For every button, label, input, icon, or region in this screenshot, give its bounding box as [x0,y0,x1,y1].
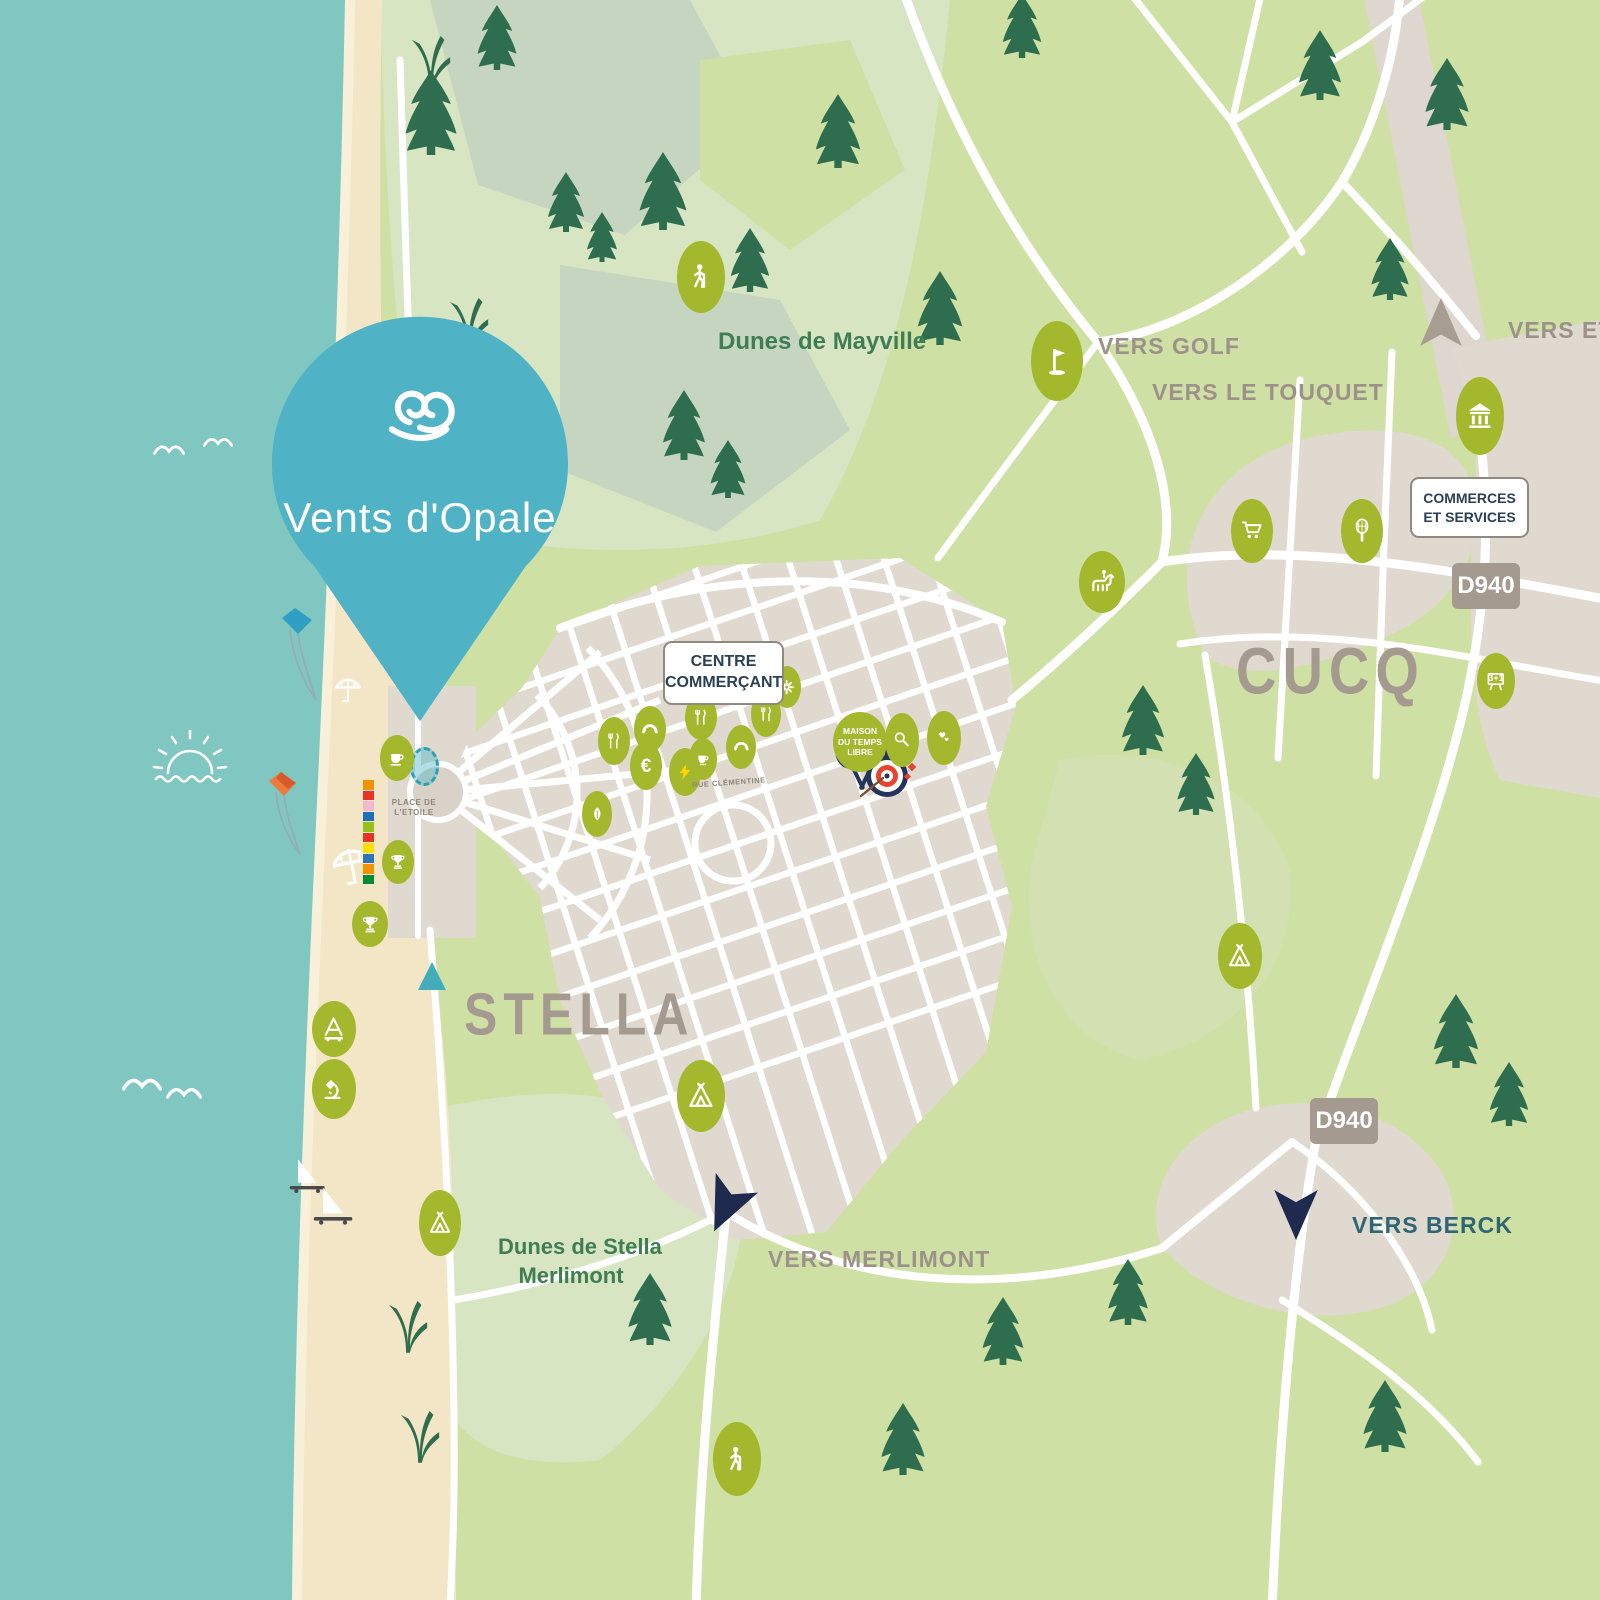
badge-d940-north: D940 [1452,563,1520,609]
map-canvas: €3+1 MAISON DU TEMPS LIBRE Dunes de Mayv… [0,0,1600,1600]
label-vers-etaples: VERS ETAPLES [1508,317,1600,344]
label-dunes-stella-2: Merlimont [498,1263,644,1289]
vents-dopale-pin: Vents d'Opale [272,316,568,722]
badge-centre-line2: COMMERÇANT [665,673,782,694]
beach-cabin [363,791,374,801]
pin-label: Vents d'Opale [272,494,568,542]
label-stella: STELLA [464,980,694,1048]
place-etoile-line1: PLACE DE [386,798,442,808]
badge-centre-commercant: CENTRE COMMERÇANT [663,641,784,705]
badge-commerces-line2: ET SERVICES [1412,508,1527,526]
place-etoile-line2: L'ETOILE [386,808,442,818]
label-vers-berck: VERS BERCK [1352,1212,1513,1239]
beach-cabin [363,854,374,864]
maison-du-temps-libre-marker: MAISON DU TEMPS LIBRE [833,712,887,772]
maison-line3: LIBRE [847,747,873,758]
sea [0,0,345,1600]
label-vers-merlimont: VERS MERLIMONT [768,1246,990,1273]
badge-commerces-services: COMMERCES ET SERVICES [1410,477,1529,538]
beach-cabin [363,812,374,822]
map-background [0,0,1600,1600]
beach-cabin [363,843,374,853]
label-vers-touquet: VERS LE TOUQUET [1152,379,1384,406]
site-location-ellipse [410,747,439,786]
badge-commerces-line1: COMMERCES [1412,489,1527,507]
badge-d940-south: D940 [1310,1098,1378,1144]
beach-cabin [363,875,374,885]
label-cucq: CUCQ [1236,632,1425,709]
badge-centre-line1: CENTRE [665,652,782,673]
beach-cabins-row [363,780,374,884]
beach-cabin [363,780,374,790]
label-place-etoile: PLACE DE L'ETOILE [386,798,442,819]
beach-cabin [363,801,374,811]
wind-swirl-icon [376,370,464,464]
beach-cabin [363,864,374,874]
label-dunes-mayville: Dunes de Mayville [718,328,926,356]
label-dunes-stella-1: Dunes de Stella [498,1234,644,1260]
beach-cabin [363,822,374,832]
beach-cabin [363,833,374,843]
label-vers-golf: VERS GOLF [1098,333,1240,360]
maison-line2: DU TEMPS [838,737,882,748]
maison-line1: MAISON [843,726,877,737]
